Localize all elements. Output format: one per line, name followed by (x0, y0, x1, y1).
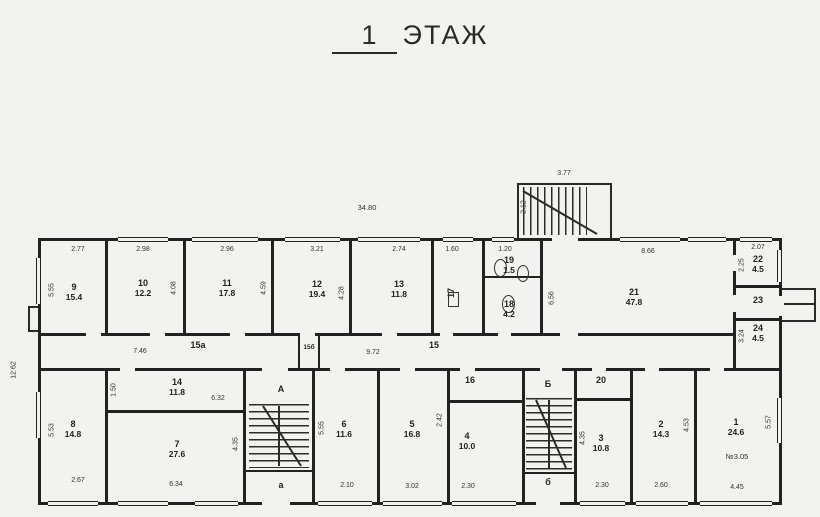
window (318, 501, 372, 506)
wall-stairA-landing (245, 470, 312, 472)
porch-wall-left (517, 183, 519, 238)
room-14-label: 1411.8 (169, 378, 185, 397)
dim-room7-depth: 4.35 (233, 437, 240, 451)
window (492, 237, 514, 242)
dim-room24-depth: 3.24 (739, 329, 746, 343)
room-8-label: 814.8 (65, 420, 82, 439)
window (118, 501, 168, 506)
room-area: 11.8 (391, 290, 407, 299)
room-area: 16.8 (404, 430, 421, 439)
dim-room2-depth: 4.53 (684, 418, 691, 432)
floor-word: ЭТАЖ (397, 20, 489, 50)
wall-2-1 (694, 371, 697, 502)
room-number: 20 (596, 376, 606, 386)
window (118, 237, 168, 242)
dim-room1-width: 4.45 (730, 484, 744, 491)
room-area: 14.3 (653, 430, 670, 439)
window (700, 501, 772, 506)
wall-6-5 (377, 371, 380, 502)
door-gap (150, 333, 165, 336)
dim-room3-depth: 4.35 (580, 431, 587, 445)
room-area: 24.6 (728, 428, 745, 437)
wall-stairB-landing (524, 472, 574, 474)
sideporch-wall-bottom (782, 320, 816, 322)
porch-stair-diagonal (521, 186, 611, 236)
dim-porch-depth: 2.12 (521, 200, 528, 214)
window (358, 237, 420, 242)
room-area: 1.5 (503, 266, 515, 275)
door-gap (120, 368, 135, 371)
stairwell-b-label: Б (545, 379, 551, 389)
window (636, 501, 688, 506)
room-22-label: 224.5 (752, 255, 764, 274)
leftstep-left (28, 306, 30, 332)
corridor-number: 15 (429, 341, 439, 351)
door-gap (230, 333, 245, 336)
door-gap (733, 295, 736, 312)
wall-22-23 (736, 285, 779, 288)
door-gap (460, 368, 475, 371)
corridor-15a-label: 15а (190, 341, 205, 351)
dim-room14-width: 6.32 (211, 395, 225, 402)
dim-room12-width: 3.21 (310, 246, 324, 253)
room-area: 4.2 (503, 310, 515, 319)
window (195, 501, 238, 506)
room-area: 4.5 (752, 265, 764, 274)
door-gap (400, 368, 415, 371)
room-18-label: 184.2 (503, 300, 515, 319)
room-area: 27.6 (169, 450, 186, 459)
sideporch-step (784, 303, 814, 305)
dim-room5-depth: 2.42 (437, 413, 444, 427)
door-gap-exit-b (536, 502, 560, 505)
dim-room9-width: 2.77 (71, 246, 85, 253)
dim-overall-width: 34.80 (358, 203, 377, 212)
door-gap (540, 368, 562, 371)
wall-20-3 (574, 398, 633, 401)
room-area: 12.2 (135, 289, 152, 298)
window (36, 392, 41, 438)
dim-room3-width: 2.30 (595, 482, 609, 489)
door-gap (86, 333, 101, 336)
dim-room11-depth: 4.59 (261, 281, 268, 295)
stairwell-a-label: А (278, 384, 285, 394)
stairwell-b-exit-label: б (545, 477, 551, 487)
dim-room10-depth: 4.08 (171, 281, 178, 295)
wall-14-7 (105, 410, 246, 413)
room-24-label: 244.5 (752, 324, 764, 343)
room-12-label: 1219.4 (309, 280, 326, 299)
window (443, 237, 473, 242)
room-10-label: 1012.2 (135, 279, 152, 298)
wall-8-7 (105, 371, 108, 502)
dim-overall-height: 12.62 (11, 361, 18, 379)
dim-room21-width: 8.66 (641, 248, 655, 255)
sideporch-wall-right (814, 288, 816, 322)
sideporch-wall-top (782, 288, 816, 290)
room-number: 17 (447, 288, 457, 298)
door-gap (733, 255, 736, 271)
room-21-label: 2147.8 (626, 288, 643, 307)
door-gap (498, 333, 511, 336)
door-gap-exit-a (262, 502, 290, 505)
door-gap (645, 368, 659, 371)
dim-room7-width: 6.34 (169, 481, 183, 488)
room-area: 11.8 (169, 388, 185, 397)
door-gap (779, 296, 782, 316)
door-gap (382, 333, 397, 336)
toilet-fixture (517, 265, 529, 282)
window (777, 398, 782, 443)
door-gap (262, 368, 288, 371)
corridor-number: 15а (190, 341, 205, 351)
wall-13-17 (431, 241, 434, 333)
room-7-label: 727.6 (169, 440, 186, 459)
wall-vestibule-15b-left (298, 336, 300, 368)
dim-porch-width: 3.77 (557, 170, 571, 177)
wall-wc-21 (540, 241, 543, 333)
room-3-label: 310.8 (593, 434, 610, 453)
dim-room14-depth: 1.50 (111, 383, 118, 397)
wall-16-4 (447, 400, 525, 403)
stairwell-a-diagonal (249, 404, 309, 468)
wall-7-stairA (243, 371, 246, 502)
stairwell-b-diagonal (526, 398, 572, 470)
wall-10-11 (183, 241, 186, 333)
room-17-label: 17 (447, 288, 457, 298)
room-11-label: 1117.8 (219, 279, 236, 298)
door-gap (330, 368, 345, 371)
dim-room21-depth: 6.56 (549, 291, 556, 305)
dim-room4-width: 2.30 (461, 483, 475, 490)
wall-5-4 (447, 371, 450, 502)
dim-room5-width: 3.02 (405, 483, 419, 490)
room-number: 16 (465, 376, 475, 386)
wall-vestibule-15b-right (318, 336, 320, 368)
room-23-label: 23 (753, 296, 763, 306)
wall-3-2 (630, 371, 633, 502)
room-area: 10.0 (459, 442, 476, 451)
door-gap-entrance (552, 238, 578, 241)
window (36, 258, 41, 304)
door-gap (710, 368, 724, 371)
door-gap (560, 333, 578, 336)
room-20-label: 20 (596, 376, 606, 386)
wall-4-stairB (522, 371, 525, 502)
room-2-label: 214.3 (653, 420, 670, 439)
window (740, 237, 772, 242)
dim-room8-depth: 5.53 (49, 423, 56, 437)
room-1-note: №3.05 (726, 452, 749, 461)
wall-19-18 (484, 276, 540, 278)
dim-room6-depth: 5.55 (319, 421, 326, 435)
dim-room9-depth: 5.55 (49, 283, 56, 297)
room-area: 17.8 (219, 289, 236, 298)
dim-room17-width: 1.60 (445, 246, 459, 253)
room-area: 10.8 (593, 444, 610, 453)
room-16-label: 16 (465, 376, 475, 386)
window (452, 501, 516, 506)
room-19-label: 191.5 (503, 256, 515, 275)
floor-number: 1 (332, 20, 397, 54)
dim-room13-width: 2.74 (392, 246, 406, 253)
corridor-number: 15б (303, 344, 314, 351)
dim-room12-depth: 4.28 (339, 286, 346, 300)
door-gap (440, 333, 453, 336)
page-title: 1ЭТАЖ (0, 20, 820, 51)
dim-room1-depth: 5.57 (766, 415, 773, 429)
window (285, 237, 340, 242)
wall-stairA-6 (312, 371, 315, 502)
window (620, 237, 680, 242)
room-1-label: 124.6 (728, 418, 745, 437)
room-area: 14.8 (65, 430, 82, 439)
wall-23-24 (736, 318, 779, 321)
wall-11-12 (271, 241, 274, 333)
window (688, 237, 726, 242)
wall-stairB-3 (574, 371, 577, 502)
door-gap (300, 333, 315, 336)
dim-room11-width: 2.96 (220, 246, 234, 253)
window (580, 501, 625, 506)
dim-room10-width: 2.98 (136, 246, 150, 253)
room-4-label: 410.0 (459, 432, 476, 451)
room-number: 23 (753, 296, 763, 306)
room-area: 11.6 (336, 430, 352, 439)
window (777, 250, 782, 282)
room-area: 19.4 (309, 290, 326, 299)
room-area: 47.8 (626, 298, 643, 307)
window (48, 501, 98, 506)
porch-wall-top (517, 183, 612, 185)
dim-corridor-left: 7.46 (133, 348, 147, 355)
dim-corridor-right: 9.72 (366, 349, 380, 356)
window (383, 501, 442, 506)
room-area: 4.5 (752, 334, 764, 343)
door-gap (592, 368, 606, 371)
wall-9-10 (105, 241, 108, 333)
dim-room6-width: 2.10 (340, 482, 354, 489)
dim-room22-width: 2.07 (751, 244, 765, 251)
room-9-label: 915.4 (66, 283, 83, 302)
room-6-label: 611.6 (336, 420, 352, 439)
corridor-15-label: 15 (429, 341, 439, 351)
wall-12-13 (349, 241, 352, 333)
stairwell-a-exit-label: а (278, 480, 283, 490)
dim-room2-width: 2.60 (654, 482, 668, 489)
room-area: 15.4 (66, 293, 83, 302)
corridor-15b-label: 15б (303, 344, 314, 351)
wall-17-wc (482, 241, 485, 333)
dim-room8-width: 2.67 (71, 477, 85, 484)
dim-room22-depth: 2.25 (739, 258, 746, 272)
room-13-label: 1311.8 (391, 280, 407, 299)
dim-room19-width: 1.20 (498, 246, 512, 253)
window (192, 237, 258, 242)
room-5-label: 516.8 (404, 420, 421, 439)
